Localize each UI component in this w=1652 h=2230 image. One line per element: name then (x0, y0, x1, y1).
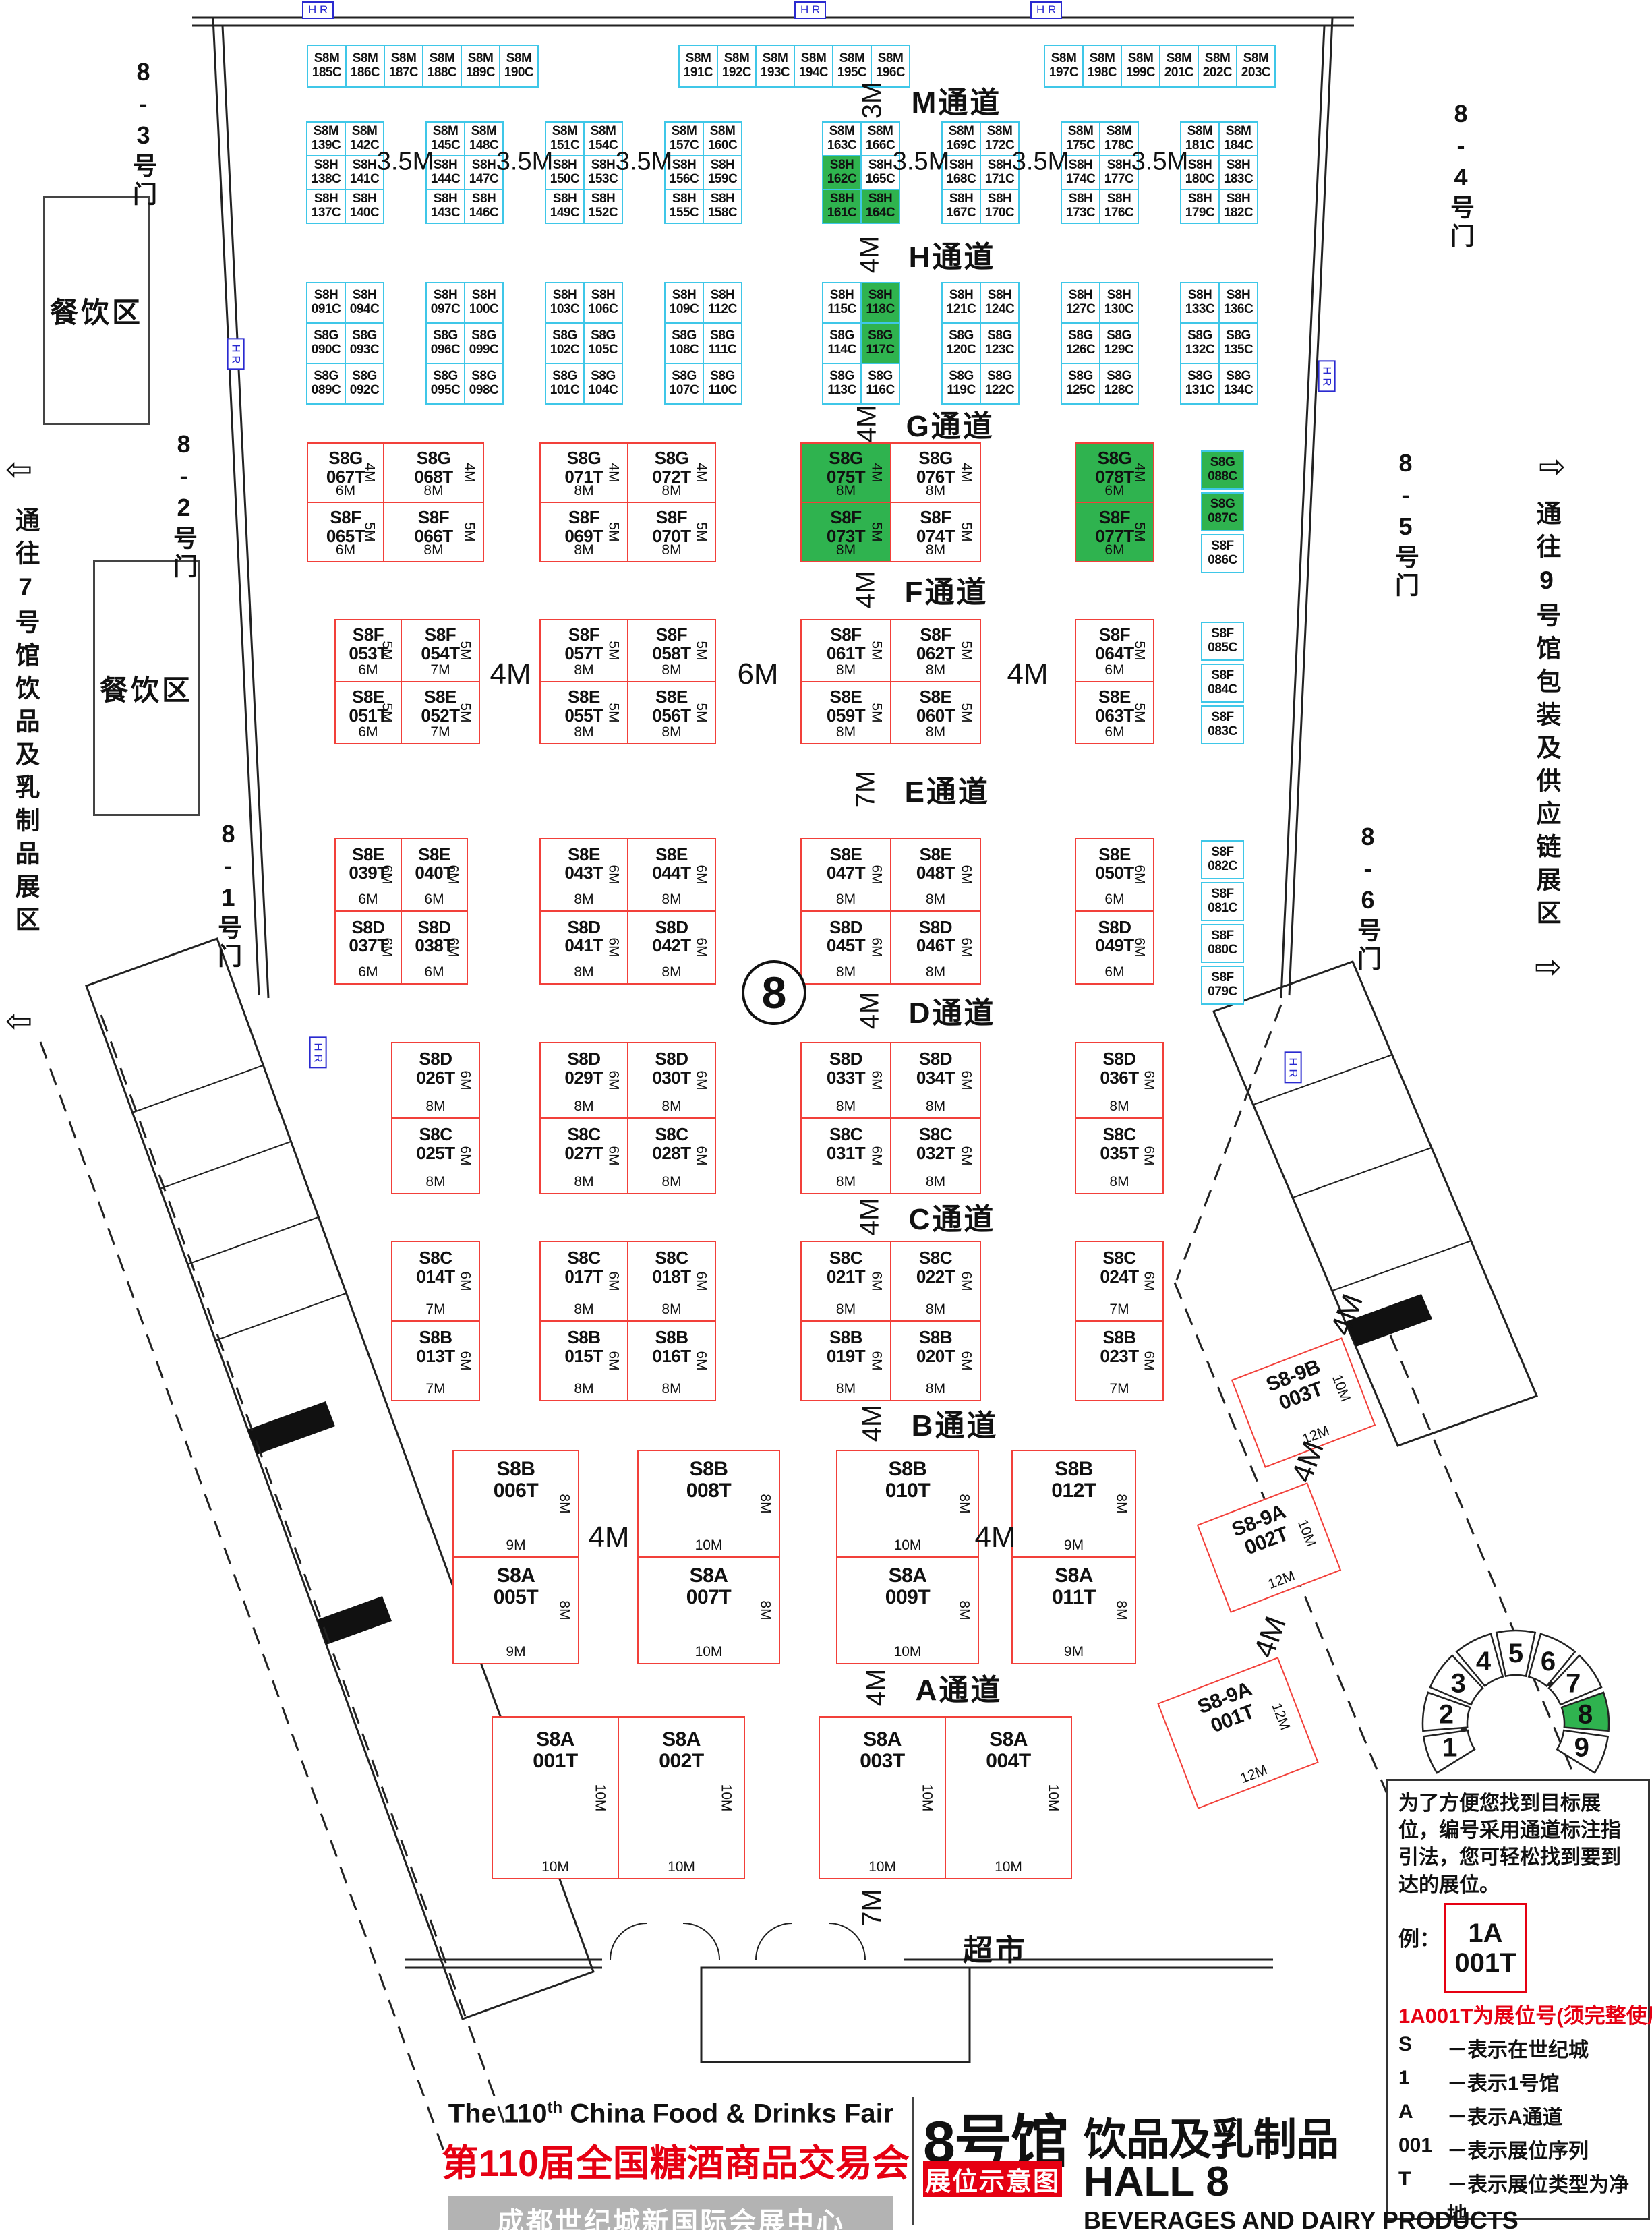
booth-S8D-041T[interactable]: S8D041T6M8M (539, 910, 628, 985)
booth-S8E-051T[interactable]: S8E051T5M6M (334, 681, 402, 744)
booth-S8A-001T[interactable]: S8A001T10M10M (492, 1716, 619, 1879)
booth-S8H-159C[interactable]: S8H159C (703, 155, 742, 190)
booth-S8H-121C[interactable]: S8H121C (941, 282, 981, 324)
example-booth-number: 001T (1454, 1948, 1516, 1978)
booth-S8H-146C[interactable]: S8H146C (464, 189, 504, 224)
booth-S8G-098C[interactable]: S8G098C (464, 363, 504, 405)
booth-S8C-031T[interactable]: S8C031T6M8M (800, 1117, 891, 1194)
booth-S8G-102C[interactable]: S8G102C (545, 322, 585, 364)
booth-S8B-012T[interactable]: S8B012T8M9M (1011, 1450, 1136, 1558)
minimap-hall-number: 7 (1566, 1668, 1581, 1698)
booth-S8G-099C[interactable]: S8G099C (464, 322, 504, 364)
booth-S8H-112C[interactable]: S8H112C (703, 282, 742, 324)
booth-S8F-083C[interactable]: S8F083C (1201, 705, 1244, 744)
booth-S8M-160C[interactable]: S8M160C (703, 121, 742, 156)
supermarket-label: 超市 (963, 1926, 1028, 1969)
booth-S8D-049T[interactable]: S8D049T6M6M (1075, 910, 1154, 985)
booth-S8H-161C[interactable]: S8H161C (822, 189, 862, 224)
booth-S8M-201C[interactable]: S8M201C (1159, 45, 1199, 88)
minimap-hall-number: 9 (1574, 1733, 1589, 1763)
booth-S8M-139C[interactable]: S8M139C (306, 121, 346, 156)
booth-S8H-137C[interactable]: S8H137C (306, 189, 346, 224)
booth-S8H-149C[interactable]: S8H149C (545, 189, 585, 224)
booth-S8F-080C[interactable]: S8F080C (1201, 924, 1244, 963)
booth-S8E-043T[interactable]: S8E043T6M8M (539, 838, 628, 912)
booth-S8H-170C[interactable]: S8H170C (980, 189, 1020, 224)
booth-S8D-034T[interactable]: S8D034T6M8M (890, 1042, 981, 1119)
booth-S8B-013T[interactable]: S8B013T6M7M (391, 1320, 480, 1401)
booth-S8F-064T[interactable]: S8F064T5M6M (1075, 619, 1154, 682)
booth-S8H-138C[interactable]: S8H138C (306, 155, 346, 190)
booth-S8H-094C[interactable]: S8H094C (345, 282, 384, 324)
booth-S8H-162C[interactable]: S8H162C (822, 155, 862, 190)
booth-S8G-135C[interactable]: S8G135C (1218, 322, 1258, 364)
booth-S8D-030T[interactable]: S8D030T6M8M (627, 1042, 716, 1119)
dimension-label: 4M (588, 1521, 629, 1554)
booth-S8B-023T[interactable]: S8B023T6M7M (1075, 1320, 1164, 1401)
booth-S8G-108C[interactable]: S8G108C (664, 322, 704, 364)
booth-S8G-072T[interactable]: S8G072T4M8M (627, 442, 716, 503)
map-type-label: 展位示意图 (923, 2161, 1062, 2197)
booth-S8H-106C[interactable]: S8H106C (583, 282, 623, 324)
booth-S8G-125C[interactable]: S8G125C (1061, 363, 1100, 405)
dimension-label: 3.5M (377, 148, 434, 177)
gate-8-4号门: 8-4号门 (1443, 100, 1478, 252)
hall-category-en: BEVERAGES AND DAIRY PRODUCTS (1084, 2206, 1518, 2230)
booth-S8E-055T[interactable]: S8E055T5M8M (539, 681, 628, 744)
legend-example-note: 1A001T为展位号(须完整使用) (1398, 1999, 1639, 2029)
minimap-hall-number: 8 (1578, 1699, 1593, 1729)
booth-S8D-037T[interactable]: S8D037T6M6M (334, 910, 402, 985)
booth-S8B-016T[interactable]: S8B016T6M8M (627, 1320, 716, 1401)
aisle-label-E: 7ME通道 (847, 767, 990, 811)
booth-S8C-018T[interactable]: S8C018T6M8M (627, 1241, 716, 1322)
booth-S8B-020T[interactable]: S8B020T6M8M (890, 1320, 981, 1401)
booth-S8M-193C[interactable]: S8M193C (755, 45, 795, 88)
aisle-label-G: 4MG通道 (848, 402, 995, 445)
booth-S8H-167C[interactable]: S8H167C (941, 189, 981, 224)
booth-S8A-004T[interactable]: S8A004T10M10M (945, 1716, 1072, 1879)
dimension-label: 3.5M (1012, 148, 1069, 177)
booth-S8F-082C[interactable]: S8F082C (1201, 840, 1244, 879)
booth-S8G-123C[interactable]: S8G123C (980, 322, 1020, 364)
booth-S8F-081C[interactable]: S8F081C (1201, 882, 1244, 921)
booth-S8F-073T[interactable]: S8F073T5M8M (800, 502, 891, 562)
booth-S8G-131C[interactable]: S8G131C (1180, 363, 1220, 405)
booth-S8C-035T[interactable]: S8C035T6M8M (1075, 1117, 1164, 1194)
booth-S8M-197C[interactable]: S8M197C (1044, 45, 1084, 88)
legend-key-1: 1－表示1号馆 (1398, 2067, 1639, 2096)
aisle-label-bottom: 7M (854, 1893, 891, 1923)
booth-S8H-115C[interactable]: S8H115C (822, 282, 862, 324)
aisle-label-D: 4MD通道 (851, 989, 995, 1032)
booth-S8M-198C[interactable]: S8M198C (1082, 45, 1122, 88)
gate-8-1号门: 8-1号门 (210, 820, 245, 972)
booth-S8G-075T[interactable]: S8G075T4M8M (800, 442, 891, 503)
booth-S8B-015T[interactable]: S8B015T6M8M (539, 1320, 628, 1401)
booth-S8F-058T[interactable]: S8F058T5M8M (627, 619, 716, 682)
booth-S8E-060T[interactable]: S8E060T5M8M (890, 681, 981, 744)
booth-S8D-046T[interactable]: S8D046T6M8M (890, 910, 981, 985)
booth-S8A-002T[interactable]: S8A002T10M10M (618, 1716, 745, 1879)
booth-S8H-124C[interactable]: S8H124C (980, 282, 1020, 324)
booth-S8H-152C[interactable]: S8H152C (583, 189, 623, 224)
booth-S8G-114C[interactable]: S8G114C (822, 322, 862, 364)
booth-S8G-076T[interactable]: S8G076T4M8M (890, 442, 981, 503)
booth-S8H-143C[interactable]: S8H143C (425, 189, 465, 224)
booth-S8F-074T[interactable]: S8F074T5M8M (890, 502, 981, 562)
booth-S8H-103C[interactable]: S8H103C (545, 282, 585, 324)
minimap-hall-number: 2 (1439, 1699, 1454, 1729)
booth-S8G-107C[interactable]: S8G107C (664, 363, 704, 405)
booth-S8G-088C[interactable]: S8G088C (1201, 450, 1244, 490)
dimension-label: 3.5M (1131, 148, 1188, 177)
aisle-label-A: 4MA通道 (858, 1666, 1002, 1709)
booth-S8F-065T[interactable]: S8F065T5M6M (307, 502, 384, 562)
booth-S8A-009T[interactable]: S8A009T8M10M (836, 1556, 979, 1664)
booth-S8H-133C[interactable]: S8H133C (1180, 282, 1220, 324)
booth-S8G-129C[interactable]: S8G129C (1099, 322, 1139, 364)
booth-S8D-042T[interactable]: S8D042T6M8M (627, 910, 716, 985)
booth-S8F-085C[interactable]: S8F085C (1201, 622, 1244, 661)
booth-S8G-120C[interactable]: S8G120C (941, 322, 981, 364)
fire-hydrant-icon: H R (1285, 1051, 1302, 1083)
booth-S8G-128C[interactable]: S8G128C (1099, 363, 1139, 405)
booth-S8D-033T[interactable]: S8D033T6M8M (800, 1042, 891, 1119)
booth-S8A-003T[interactable]: S8A003T10M10M (819, 1716, 946, 1879)
booth-S8H-158C[interactable]: S8H158C (703, 189, 742, 224)
booth-S8C-024T[interactable]: S8C024T6M7M (1075, 1241, 1164, 1322)
booth-S8E-050T[interactable]: S8E050T6M6M (1075, 838, 1154, 912)
booth-S8H-127C[interactable]: S8H127C (1061, 282, 1100, 324)
minimap-hall-number: 4 (1476, 1647, 1492, 1676)
booth-S8G-089C[interactable]: S8G089C (306, 363, 346, 405)
booth-S8F-084C[interactable]: S8F084C (1201, 664, 1244, 703)
booth-S8D-026T[interactable]: S8D026T6M8M (391, 1042, 480, 1119)
booth-S8M-188C[interactable]: S8M188C (422, 45, 462, 88)
booth-S8G-068T[interactable]: S8G068T4M8M (383, 442, 484, 503)
booth-S8F-054T[interactable]: S8F054T5M7M (401, 619, 480, 682)
dimension-label: 3.5M (496, 148, 553, 177)
aisle-label-C: 4MC通道 (851, 1195, 995, 1238)
fire-hydrant-icon: H R (794, 1, 826, 19)
booth-S8G-110C[interactable]: S8G110C (703, 363, 742, 405)
booth-S8H-130C[interactable]: S8H130C (1099, 282, 1139, 324)
booth-S8F-061T[interactable]: S8F061T5M8M (800, 619, 891, 682)
fire-hydrant-icon: H R (302, 1, 334, 19)
legend-example-label: 例： (1398, 1922, 1440, 1952)
gate-8-6号门: 8-6号门 (1350, 823, 1385, 974)
legend-intro: 为了方便您找到目标展位，编号采用通道标注指引法，您可轻松找到要到达的展位。 (1398, 1790, 1639, 1899)
legend-key-001: 001－表示展位序列 (1398, 2134, 1639, 2164)
dimension-label: 4M (974, 1521, 1015, 1554)
booth-S8G-122C[interactable]: S8G122C (980, 363, 1020, 405)
booth-S8C-021T[interactable]: S8C021T6M8M (800, 1241, 891, 1322)
corridor-arrow-left-icon: ⇦ (5, 1002, 32, 1040)
title-block: The 110th China Food & Drinks Fair 第110届… (442, 2093, 1372, 2228)
booth-S8C-028T[interactable]: S8C028T6M8M (627, 1117, 716, 1194)
dimension-label: 4M (1007, 657, 1048, 691)
booth-S8G-092C[interactable]: S8G092C (345, 363, 384, 405)
booth-S8G-105C[interactable]: S8G105C (583, 322, 623, 364)
booth-S8M-194C[interactable]: S8M194C (794, 45, 833, 88)
dimension-label: 6M (737, 657, 778, 691)
booth-S8H-140C[interactable]: S8H140C (345, 189, 384, 224)
booth-S8H-179C[interactable]: S8H179C (1180, 189, 1220, 224)
booth-S8C-032T[interactable]: S8C032T6M8M (890, 1117, 981, 1194)
booth-S8M-184C[interactable]: S8M184C (1218, 121, 1258, 156)
booth-S8H-173C[interactable]: S8H173C (1061, 189, 1100, 224)
booth-S8G-095C[interactable]: S8G095C (425, 363, 465, 405)
booth-S8M-186C[interactable]: S8M186C (345, 45, 385, 88)
legend-code-keys: S－表示在世纪城1－表示1号馆A－表示A通道001－表示展位序列T－表示展位类型… (1398, 2033, 1639, 2227)
booth-S8D-036T[interactable]: S8D036T6M8M (1075, 1042, 1164, 1119)
booth-S8D-029T[interactable]: S8D029T6M8M (539, 1042, 628, 1119)
booth-S8E-063T[interactable]: S8E063T5M6M (1075, 681, 1154, 744)
booth-S8E-052T[interactable]: S8E052T5M7M (401, 681, 480, 744)
booth-S8H-097C[interactable]: S8H097C (425, 282, 465, 324)
booth-S8G-111C[interactable]: S8G111C (703, 322, 742, 364)
fair-title-en: The 110th China Food & Drinks Fair (442, 2099, 900, 2129)
booth-S8H-164C[interactable]: S8H164C (860, 189, 900, 224)
booth-S8M-203C[interactable]: S8M203C (1236, 45, 1276, 88)
booth-S8E-040T[interactable]: S8E040T6M6M (401, 838, 468, 912)
dimension-label: 3.5M (893, 148, 949, 177)
aisle-label-H: 4MH通道 (851, 233, 995, 276)
booth-S8F-057T[interactable]: S8F057T5M8M (539, 619, 628, 682)
booth-S8H-155C[interactable]: S8H155C (664, 189, 704, 224)
booth-S8H-136C[interactable]: S8H136C (1218, 282, 1258, 324)
booth-S8C-017T[interactable]: S8C017T6M8M (539, 1241, 628, 1322)
booth-S8G-067T[interactable]: S8G067T4M6M (307, 442, 384, 503)
canteen-area: 餐饮区 (93, 560, 200, 816)
booth-S8H-183C[interactable]: S8H183C (1218, 155, 1258, 190)
booth-S8B-010T[interactable]: S8B010T8M10M (836, 1450, 979, 1558)
legend-key-A: A－表示A通道 (1398, 2101, 1639, 2130)
legend-box: 为了方便您找到目标展位，编号采用通道标注指引法，您可轻松找到要到达的展位。 例：… (1386, 1779, 1650, 2220)
title-divider (912, 2097, 914, 2225)
legend-example-booth: 1A 001T (1444, 1903, 1527, 1993)
dimension-label: 4M (490, 657, 531, 691)
booth-S8G-116C[interactable]: S8G116C (860, 363, 900, 405)
booth-S8M-189C[interactable]: S8M189C (461, 45, 500, 88)
booth-S8B-008T[interactable]: S8B008T8M10M (637, 1450, 780, 1558)
example-booth-hall: 1A (1468, 1918, 1502, 1948)
booth-S8H-100C[interactable]: S8H100C (464, 282, 504, 324)
booth-S8M-202C[interactable]: S8M202C (1198, 45, 1237, 88)
booth-S8G-101C[interactable]: S8G101C (545, 363, 585, 405)
aisle-label-F: 4MF通道 (847, 568, 988, 611)
booth-S8C-025T[interactable]: S8C025T6M8M (391, 1117, 480, 1194)
minimap-hall-number: 1 (1442, 1733, 1457, 1763)
hall-name-en: HALL 8 (1084, 2158, 1229, 2206)
booth-S8E-044T[interactable]: S8E044T6M8M (627, 838, 716, 912)
booth-S8M-192C[interactable]: S8M192C (717, 45, 757, 88)
minimap-hall-number: 5 (1508, 1639, 1523, 1668)
aisle-label-M: 3MM通道 (854, 78, 1001, 121)
booth-S8H-176C[interactable]: S8H176C (1099, 189, 1139, 224)
booth-S8G-104C[interactable]: S8G104C (583, 363, 623, 405)
booth-S8B-019T[interactable]: S8B019T6M8M (800, 1320, 891, 1401)
legend-key-S: S－表示在世纪城 (1398, 2033, 1639, 2063)
booth-S8G-071T[interactable]: S8G071T4M8M (539, 442, 628, 503)
hall-locator-minimap: 123456789 (1389, 1622, 1645, 1778)
booth-S8E-056T[interactable]: S8E056T5M8M (627, 681, 716, 744)
booth-S8G-087C[interactable]: S8G087C (1201, 492, 1244, 531)
booth-S8F-077T[interactable]: S8F077T5M6M (1075, 502, 1154, 562)
venue-name: 成都世纪城新国际会展中心 (448, 2196, 893, 2230)
corridor-text-left: 通往7号馆饮品及乳制品展区 (7, 507, 43, 993)
booth-S8M-187C[interactable]: S8M187C (384, 45, 423, 88)
fire-hydrant-icon: H R (227, 338, 245, 370)
canteen-area: 餐饮区 (43, 196, 150, 425)
fire-hydrant-icon: H R (1318, 360, 1336, 392)
booth-S8G-134C[interactable]: S8G134C (1218, 363, 1258, 405)
booth-S8E-047T[interactable]: S8E047T6M8M (800, 838, 891, 912)
booth-S8H-109C[interactable]: S8H109C (664, 282, 704, 324)
booth-S8M-199C[interactable]: S8M199C (1121, 45, 1160, 88)
booth-S8F-079C[interactable]: S8F079C (1201, 966, 1244, 1005)
booth-S8G-090C[interactable]: S8G090C (306, 322, 346, 364)
gate-8-5号门: 8-5号门 (1388, 449, 1423, 601)
booth-S8G-093C[interactable]: S8G093C (345, 322, 384, 364)
booth-S8H-091C[interactable]: S8H091C (306, 282, 346, 324)
booth-S8C-014T[interactable]: S8C014T6M7M (391, 1241, 480, 1322)
booth-S8G-096C[interactable]: S8G096C (425, 322, 465, 364)
floor-plan: 123456789 为了方便您找到目标展位，编号采用通道标注指引法，您可轻松找到… (0, 0, 1652, 2230)
booth-S8G-117C[interactable]: S8G117C (860, 322, 900, 364)
booth-S8G-132C[interactable]: S8G132C (1180, 322, 1220, 364)
booth-S8A-005T[interactable]: S8A005T8M9M (452, 1556, 579, 1664)
booth-S8A-011T[interactable]: S8A011T8M9M (1011, 1556, 1136, 1664)
booth-S8D-045T[interactable]: S8D045T6M8M (800, 910, 891, 985)
fire-hydrant-icon: H R (1030, 1, 1062, 19)
booth-S8M-191C[interactable]: S8M191C (678, 45, 718, 88)
booth-S8F-070T[interactable]: S8F070T5M8M (627, 502, 716, 562)
corridor-arrow-right-icon: ⇨ (1535, 948, 1562, 986)
booth-S8G-078T[interactable]: S8G078T4M6M (1075, 442, 1154, 503)
booth-S8D-038T[interactable]: S8D038T6M6M (401, 910, 468, 985)
minimap-hall-number: 6 (1541, 1647, 1556, 1676)
booth-S8G-119C[interactable]: S8G119C (941, 363, 981, 405)
booth-S8E-048T[interactable]: S8E048T6M8M (890, 838, 981, 912)
booth-S8M-190C[interactable]: S8M190C (499, 45, 539, 88)
corridor-arrow-left-icon: ⇦ (5, 450, 32, 488)
booth-S8H-182C[interactable]: S8H182C (1218, 189, 1258, 224)
booth-S8M-185C[interactable]: S8M185C (307, 45, 347, 88)
booth-S8E-059T[interactable]: S8E059T5M8M (800, 681, 891, 744)
gate-8-2号门: 8-2号门 (166, 430, 201, 582)
corridor-arrow-right-icon: ⇨ (1539, 448, 1566, 486)
aisle-label-B: 4MB通道 (854, 1401, 998, 1444)
booth-S8C-022T[interactable]: S8C022T6M8M (890, 1241, 981, 1322)
booth-S8F-066T[interactable]: S8F066T5M8M (383, 502, 484, 562)
booth-S8F-053T[interactable]: S8F053T5M6M (334, 619, 402, 682)
dimension-label: 3.5M (616, 148, 672, 177)
booth-S8A-007T[interactable]: S8A007T8M10M (637, 1556, 780, 1664)
corridor-text-right: 通往9号馆包装及供应链展区 (1528, 500, 1564, 972)
booth-S8B-006T[interactable]: S8B006T8M9M (452, 1450, 579, 1558)
booth-S8F-069T[interactable]: S8F069T5M8M (539, 502, 628, 562)
booth-S8C-027T[interactable]: S8C027T6M8M (539, 1117, 628, 1194)
booth-S8F-062T[interactable]: S8F062T5M8M (890, 619, 981, 682)
booth-S8M-163C[interactable]: S8M163C (822, 121, 862, 156)
booth-S8H-118C[interactable]: S8H118C (860, 282, 900, 324)
fire-hydrant-icon: H R (309, 1036, 327, 1068)
fair-title-cn: 第110届全国糖酒商品交易会 (442, 2133, 900, 2187)
booth-S8G-126C[interactable]: S8G126C (1061, 322, 1100, 364)
minimap-hall-number: 3 (1451, 1668, 1466, 1698)
booth-S8E-039T[interactable]: S8E039T6M6M (334, 838, 402, 912)
booth-S8F-086C[interactable]: S8F086C (1201, 534, 1244, 573)
hall-number-circle: 8 (742, 960, 806, 1025)
booth-S8G-113C[interactable]: S8G113C (822, 363, 862, 405)
gate-8-3号门: 8-3号门 (125, 58, 160, 210)
